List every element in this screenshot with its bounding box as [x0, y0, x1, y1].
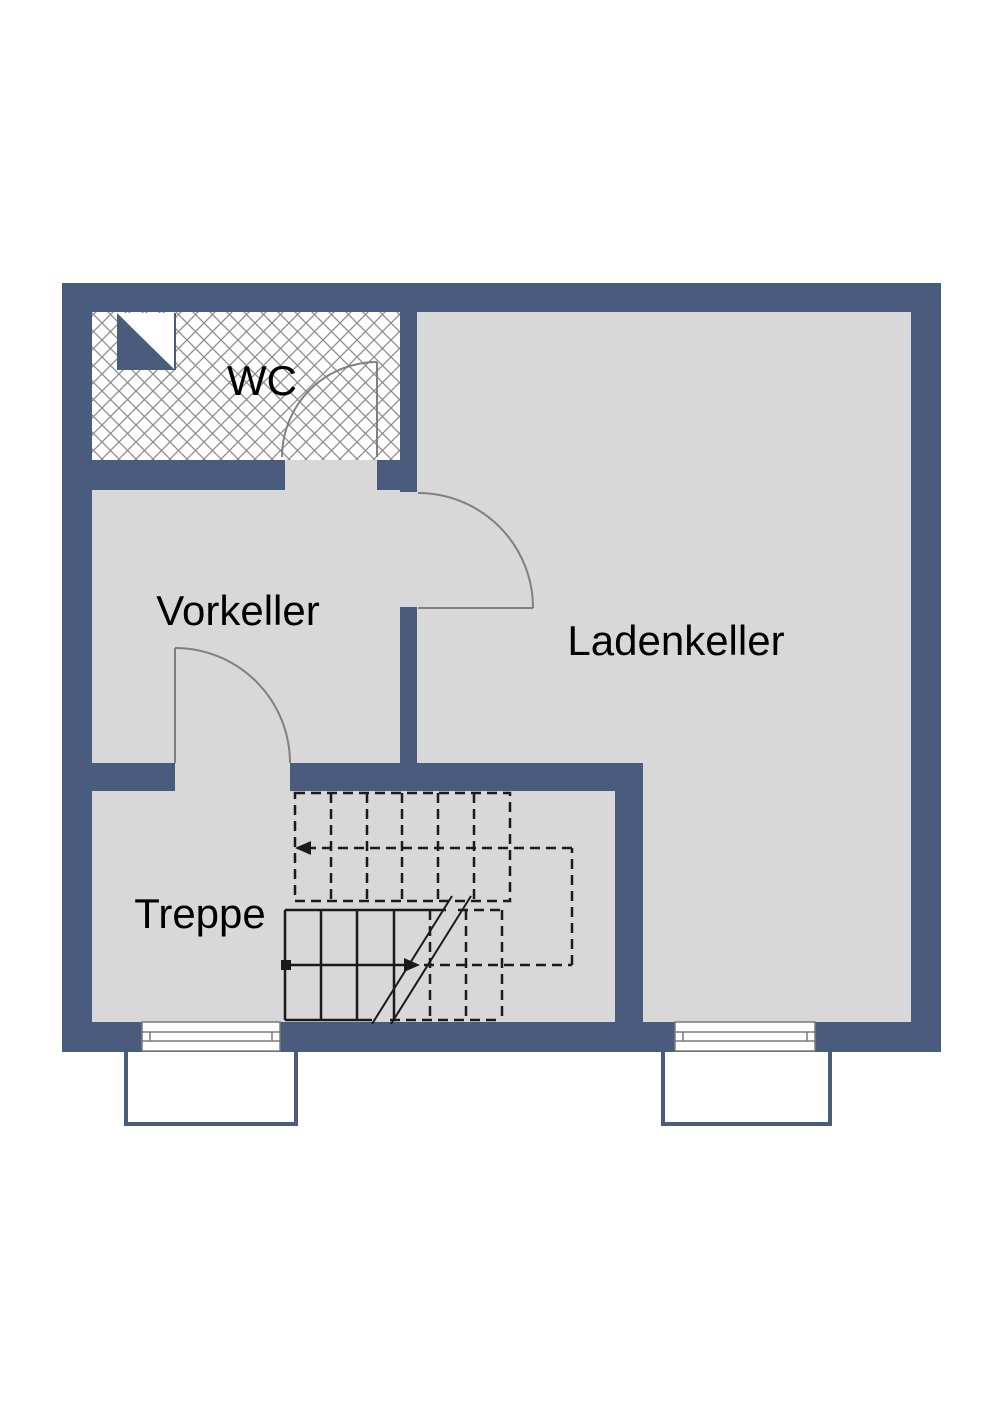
wall-divider-upper — [400, 312, 417, 492]
window-right — [675, 1022, 815, 1051]
shaft-symbol — [117, 313, 175, 370]
room-label-vorkeller: Vorkeller — [156, 587, 319, 634]
room-label-wc: WC — [227, 357, 297, 404]
window-left-frame — [142, 1022, 280, 1051]
wall-outer-top — [62, 283, 941, 312]
wall-outer-right — [911, 283, 941, 1052]
room-label-ladenkeller: Ladenkeller — [567, 617, 784, 664]
window-left — [142, 1022, 280, 1051]
wall-stairs-north — [290, 763, 643, 791]
wall-stairs-east — [615, 763, 643, 1022]
window-right-frame — [675, 1022, 815, 1051]
floor-plan: WC Vorkeller Ladenkeller Treppe — [0, 0, 1000, 1415]
wall-treppe-north — [62, 763, 175, 791]
wall-wc-south-left — [62, 460, 285, 490]
wall-outer-left — [62, 283, 92, 1052]
room-label-treppe: Treppe — [134, 890, 266, 937]
walking-line-start-marker — [281, 960, 291, 970]
